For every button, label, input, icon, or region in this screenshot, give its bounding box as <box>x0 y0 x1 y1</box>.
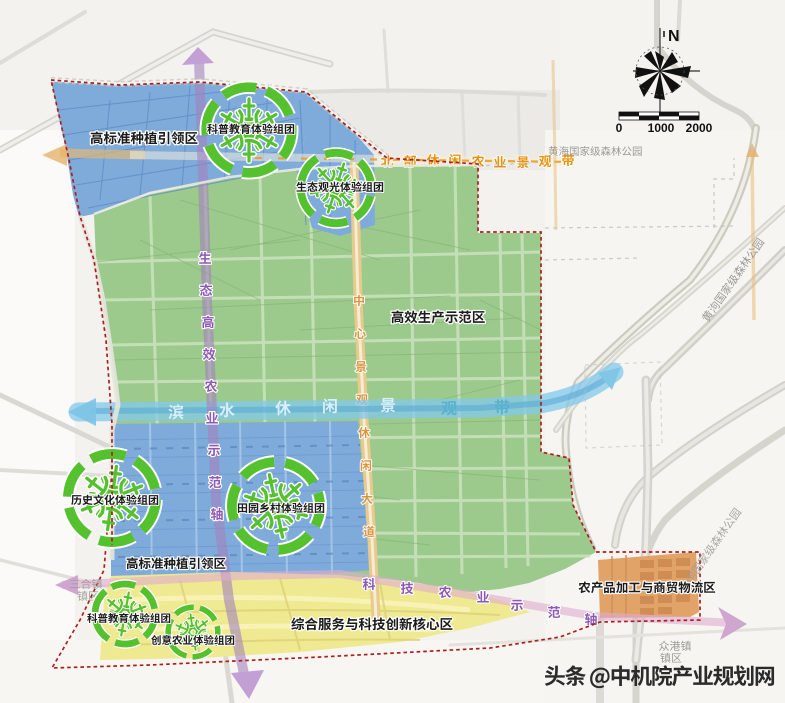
svg-text:N: N <box>668 28 680 45</box>
svg-text:1000: 1000 <box>648 121 675 135</box>
svg-text:0: 0 <box>616 121 623 135</box>
svg-text:2000: 2000 <box>686 121 713 135</box>
